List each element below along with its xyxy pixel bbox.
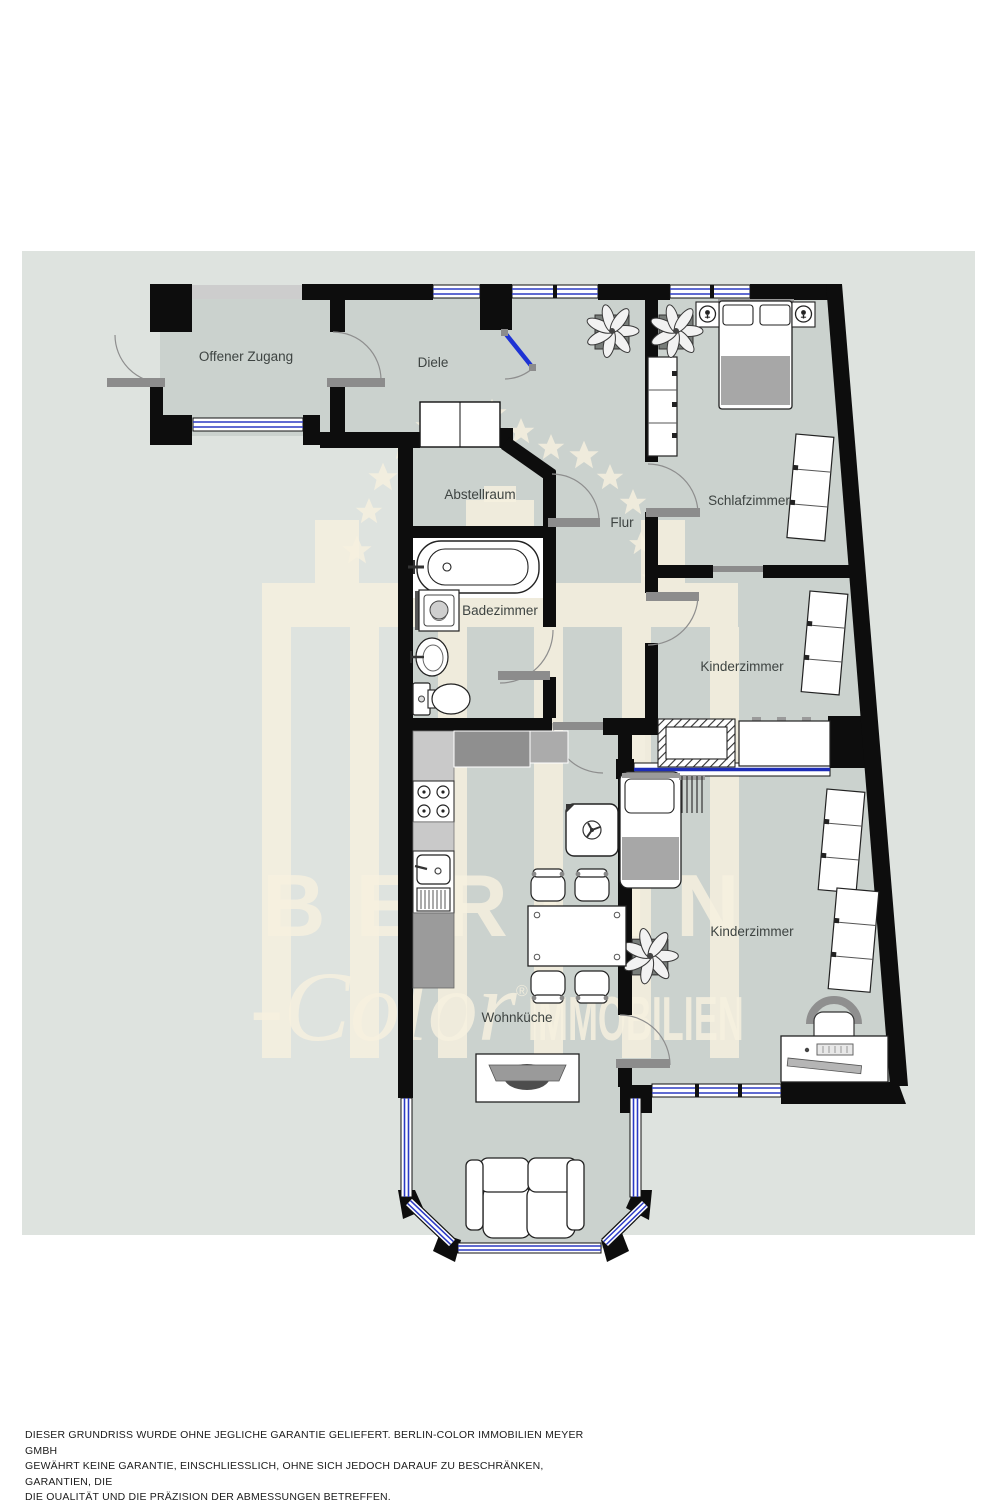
label-kinderzimmer-1: Kinderzimmer (700, 659, 784, 674)
label-flur: Flur (610, 515, 634, 530)
lamp-icon (700, 306, 716, 322)
bay-window-bottom (458, 1243, 601, 1253)
keyboard (817, 1044, 853, 1055)
bay-window-left (401, 1098, 412, 1197)
disclaimer: DIESER GRUNDRISS WURDE OHNE JEGLICHE GAR… (25, 1428, 585, 1500)
label-diele: Diele (418, 355, 449, 370)
nightstand-right (792, 302, 815, 327)
label-offener-zugang: Offener Zugang (199, 349, 293, 364)
label-wohnkueche: Wohnküche (481, 1010, 552, 1025)
open-access-railing (192, 285, 302, 299)
tv-sideboard (476, 1054, 579, 1102)
watermark-brand-top: BERLIN (262, 856, 770, 955)
disclaimer-line-1: DIESER GRUNDRISS WURDE OHNE JEGLICHE GAR… (25, 1428, 585, 1459)
drainer (417, 888, 450, 911)
hall-cabinet (420, 402, 500, 447)
bay-window-right (630, 1098, 641, 1197)
nightstand-left (696, 302, 719, 327)
counter-lower (413, 913, 454, 988)
wardrobe-kinderzimmer-2-lower (828, 888, 879, 992)
double-bed (719, 301, 792, 409)
window-hall-top (512, 285, 598, 298)
toilet (413, 683, 470, 715)
single-bed (620, 772, 681, 888)
window-schlafzimmer-top (670, 285, 750, 298)
wardrobe-kinderzimmer-2-upper (818, 789, 865, 893)
bathtub (408, 541, 539, 593)
wardrobe-kinderzimmer-1 (801, 591, 848, 695)
stove (413, 781, 454, 822)
window-offener-zugang-bottom (193, 418, 303, 431)
disclaimer-line-3: DIE QUALITÄT UND DIE PRÄZISION DER ABMES… (25, 1490, 585, 1500)
window-diele-top (433, 285, 480, 298)
watermark-registered-mark: ® (516, 983, 528, 1000)
wardrobe-schlafzimmer-left (648, 357, 677, 456)
watermark-brand-script: -Color (250, 951, 518, 1062)
opening-schlafzimmer-kinderzimmer (713, 566, 763, 572)
cabinet (530, 731, 568, 763)
dresser (739, 717, 830, 766)
label-abstellraum: Abstellraum (444, 487, 515, 502)
tall-cabinet (454, 731, 530, 767)
desk (781, 1036, 888, 1082)
boiler (566, 804, 618, 856)
floor-plan-canvas: BERLIN -Color ® IMMOBILIEN (0, 0, 1000, 1500)
label-schlafzimmer: Schlafzimmer (708, 493, 790, 508)
label-badezimmer: Badezimmer (462, 603, 538, 618)
sofa (466, 1158, 584, 1238)
crib (658, 719, 735, 767)
disclaimer-line-2: GEWÄHRT KEINE GARANTIE, EINSCHLIESSLICH,… (25, 1459, 585, 1490)
floor-plan-page: BERLIN -Color ® IMMOBILIEN (0, 0, 1000, 1500)
mouse (805, 1048, 809, 1052)
counter (413, 822, 454, 851)
lamp-icon (796, 306, 812, 322)
kitchen-sink (413, 851, 454, 913)
window-kinderzimmer-bottom (652, 1084, 781, 1097)
label-kinderzimmer-2: Kinderzimmer (710, 924, 794, 939)
washing-machine (415, 590, 459, 631)
counter (413, 731, 454, 781)
